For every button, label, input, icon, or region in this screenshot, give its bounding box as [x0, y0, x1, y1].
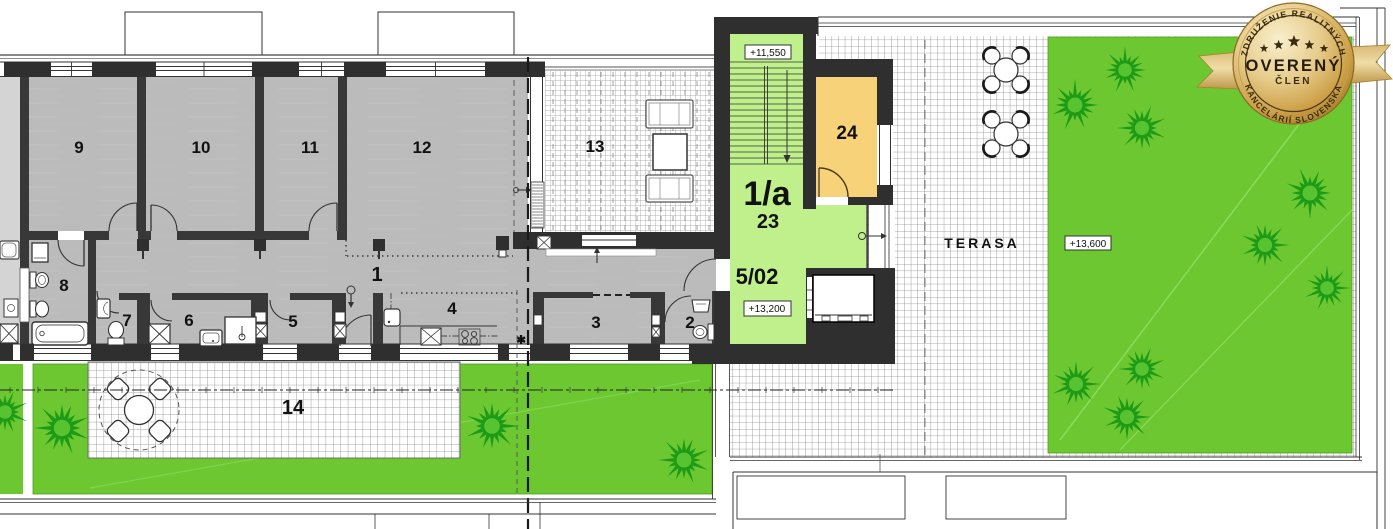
svg-text:4: 4	[447, 299, 457, 318]
svg-text:1/a: 1/a	[743, 175, 791, 213]
svg-text:ČLEN: ČLEN	[1275, 74, 1312, 87]
svg-text:5: 5	[288, 312, 297, 331]
svg-text:✱: ✱	[516, 333, 526, 347]
svg-text:13: 13	[586, 137, 605, 156]
svg-text:OVERENÝ: OVERENÝ	[1245, 56, 1341, 75]
svg-text:5/02: 5/02	[736, 264, 779, 289]
svg-text:14: 14	[282, 397, 305, 419]
svg-text:1: 1	[371, 264, 382, 286]
svg-text:11: 11	[301, 138, 319, 157]
svg-text:3: 3	[591, 313, 600, 332]
svg-text:9: 9	[74, 138, 83, 157]
svg-text:+13,200: +13,200	[749, 304, 786, 315]
svg-text:6: 6	[184, 311, 193, 330]
svg-text:+11,550: +11,550	[750, 48, 786, 59]
svg-text:2: 2	[685, 313, 694, 332]
svg-text:8: 8	[59, 276, 68, 295]
svg-text:+13,600: +13,600	[1070, 239, 1107, 250]
svg-text:12: 12	[413, 138, 432, 157]
svg-text:24: 24	[836, 123, 858, 144]
svg-text:TERASA: TERASA	[944, 235, 1020, 251]
svg-text:10: 10	[192, 138, 211, 157]
svg-text:7: 7	[122, 311, 131, 330]
svg-text:23: 23	[757, 211, 779, 233]
